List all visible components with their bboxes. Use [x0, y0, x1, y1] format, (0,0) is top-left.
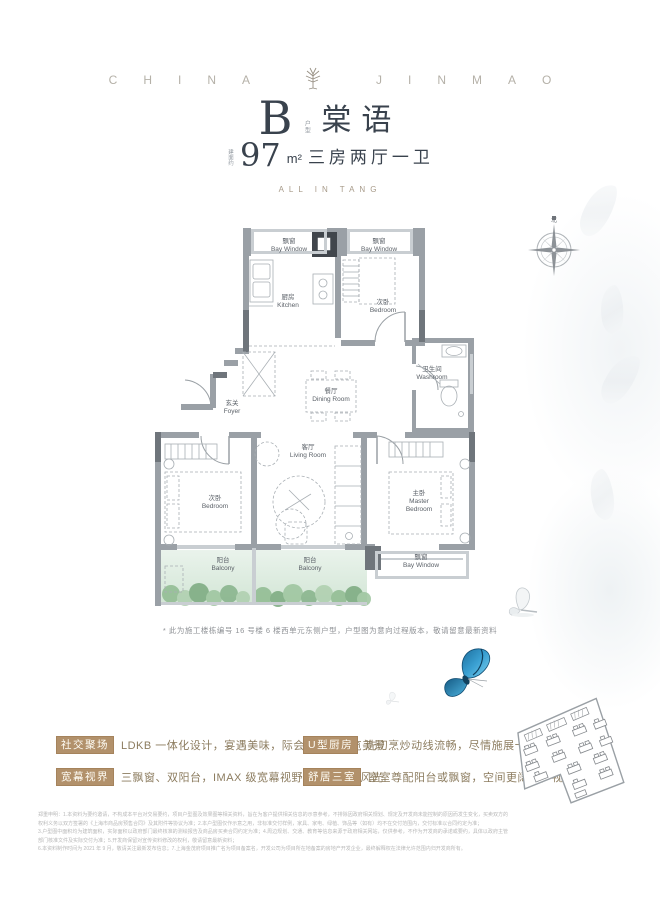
- feature-badge: 社交聚场: [56, 736, 114, 754]
- feather-decoration: [597, 349, 643, 410]
- room-label-master-bedroom: 主卧 Master Bedroom: [395, 490, 443, 514]
- disclaimer-line: 郑重申明：1.本资料为要约邀请，不构成本平台对交易要约，项目户型图及效果图等相关…: [38, 811, 508, 828]
- subtitle-english: ALL IN TANG: [0, 185, 660, 194]
- room-label-bedroom-top: 次卧 Bedroom: [353, 299, 413, 315]
- room-label-foyer: 玄关 Foyer: [202, 400, 262, 416]
- unit-area-row: 建面约 97 m² 三房两厅一卫: [0, 140, 660, 170]
- butterfly-blue-icon: [437, 643, 499, 710]
- brand-header: CHINA JINMAO: [0, 66, 660, 93]
- brand-left-text: CHINA: [83, 73, 276, 87]
- brand-right-text: JINMAO: [350, 73, 577, 87]
- feature-badge: 宽幕视界: [56, 768, 114, 786]
- butterfly-small-icon: [382, 690, 402, 711]
- floor-plan: 飘窗 Bay Window 厨房 Kitchen 飘窗 Bay Window 次…: [139, 214, 485, 616]
- compass-icon: 北: [522, 214, 586, 280]
- room-label-dining-room: 餐厅 Dining Room: [301, 388, 361, 404]
- layout-text: 三房两厅一卫: [308, 147, 434, 170]
- feature-badge: U型厨房: [303, 736, 358, 754]
- tree-icon: [302, 66, 324, 93]
- room-label-bedroom-left: 次卧 Bedroom: [185, 495, 245, 511]
- floor-plan-flyer: CHINA JINMAO B 户型 棠语 建面约 97 m² 三房两厅一卫 A: [0, 0, 660, 906]
- disclaimer-line: 3.户型图中面积均为建筑面积，实际面积以政府部门最终核准的测绘报告及商品房买卖合…: [38, 828, 508, 845]
- unit-note: 户型: [302, 120, 311, 140]
- background-wash: [490, 140, 660, 560]
- room-label-living-room: 客厅 Living Room: [278, 444, 338, 460]
- room-label-kitchen: 厨房 Kitchen: [258, 294, 318, 310]
- room-label-bay-window-top-left: 飘窗 Bay Window: [249, 238, 329, 254]
- room-label-balcony-right: 阳台 Balcony: [280, 557, 340, 573]
- site-key-plan: [501, 689, 636, 820]
- area-prefix: 建面约: [226, 149, 234, 171]
- unit-letter: B: [259, 96, 293, 140]
- room-label-bay-window-top-right: 飘窗 Bay Window: [340, 238, 418, 254]
- room-label-balcony-left: 阳台 Balcony: [193, 557, 253, 573]
- area-unit: m²: [287, 150, 302, 170]
- feature-badge: 舒居三室: [303, 768, 361, 786]
- unit-title: B 户型 棠语: [0, 96, 660, 140]
- plan-note: * 此为施工楼栋编号 16 号楼 6 楼西单元东侧户型，户型图为意向过程版本，敬…: [0, 625, 660, 636]
- butterfly-white-icon: [501, 581, 547, 624]
- room-label-bay-window-bottom: 飘窗 Bay Window: [391, 554, 451, 570]
- disclaimer: 郑重申明：1.本资料为要约邀请，不构成本平台对交易要约，项目户型图及效果图等相关…: [38, 811, 508, 854]
- unit-name: 棠语: [321, 102, 401, 140]
- disclaimer-line: 6.本资料制作时间为 2021 年 9 月，敬请关注最新发布信息；7.上海金茂府…: [38, 845, 508, 854]
- feather-decoration: [583, 468, 621, 523]
- room-label-washroom: 卫生间 Washroom: [403, 366, 461, 382]
- feather-decoration: [595, 284, 628, 336]
- area-number: 97: [240, 140, 281, 170]
